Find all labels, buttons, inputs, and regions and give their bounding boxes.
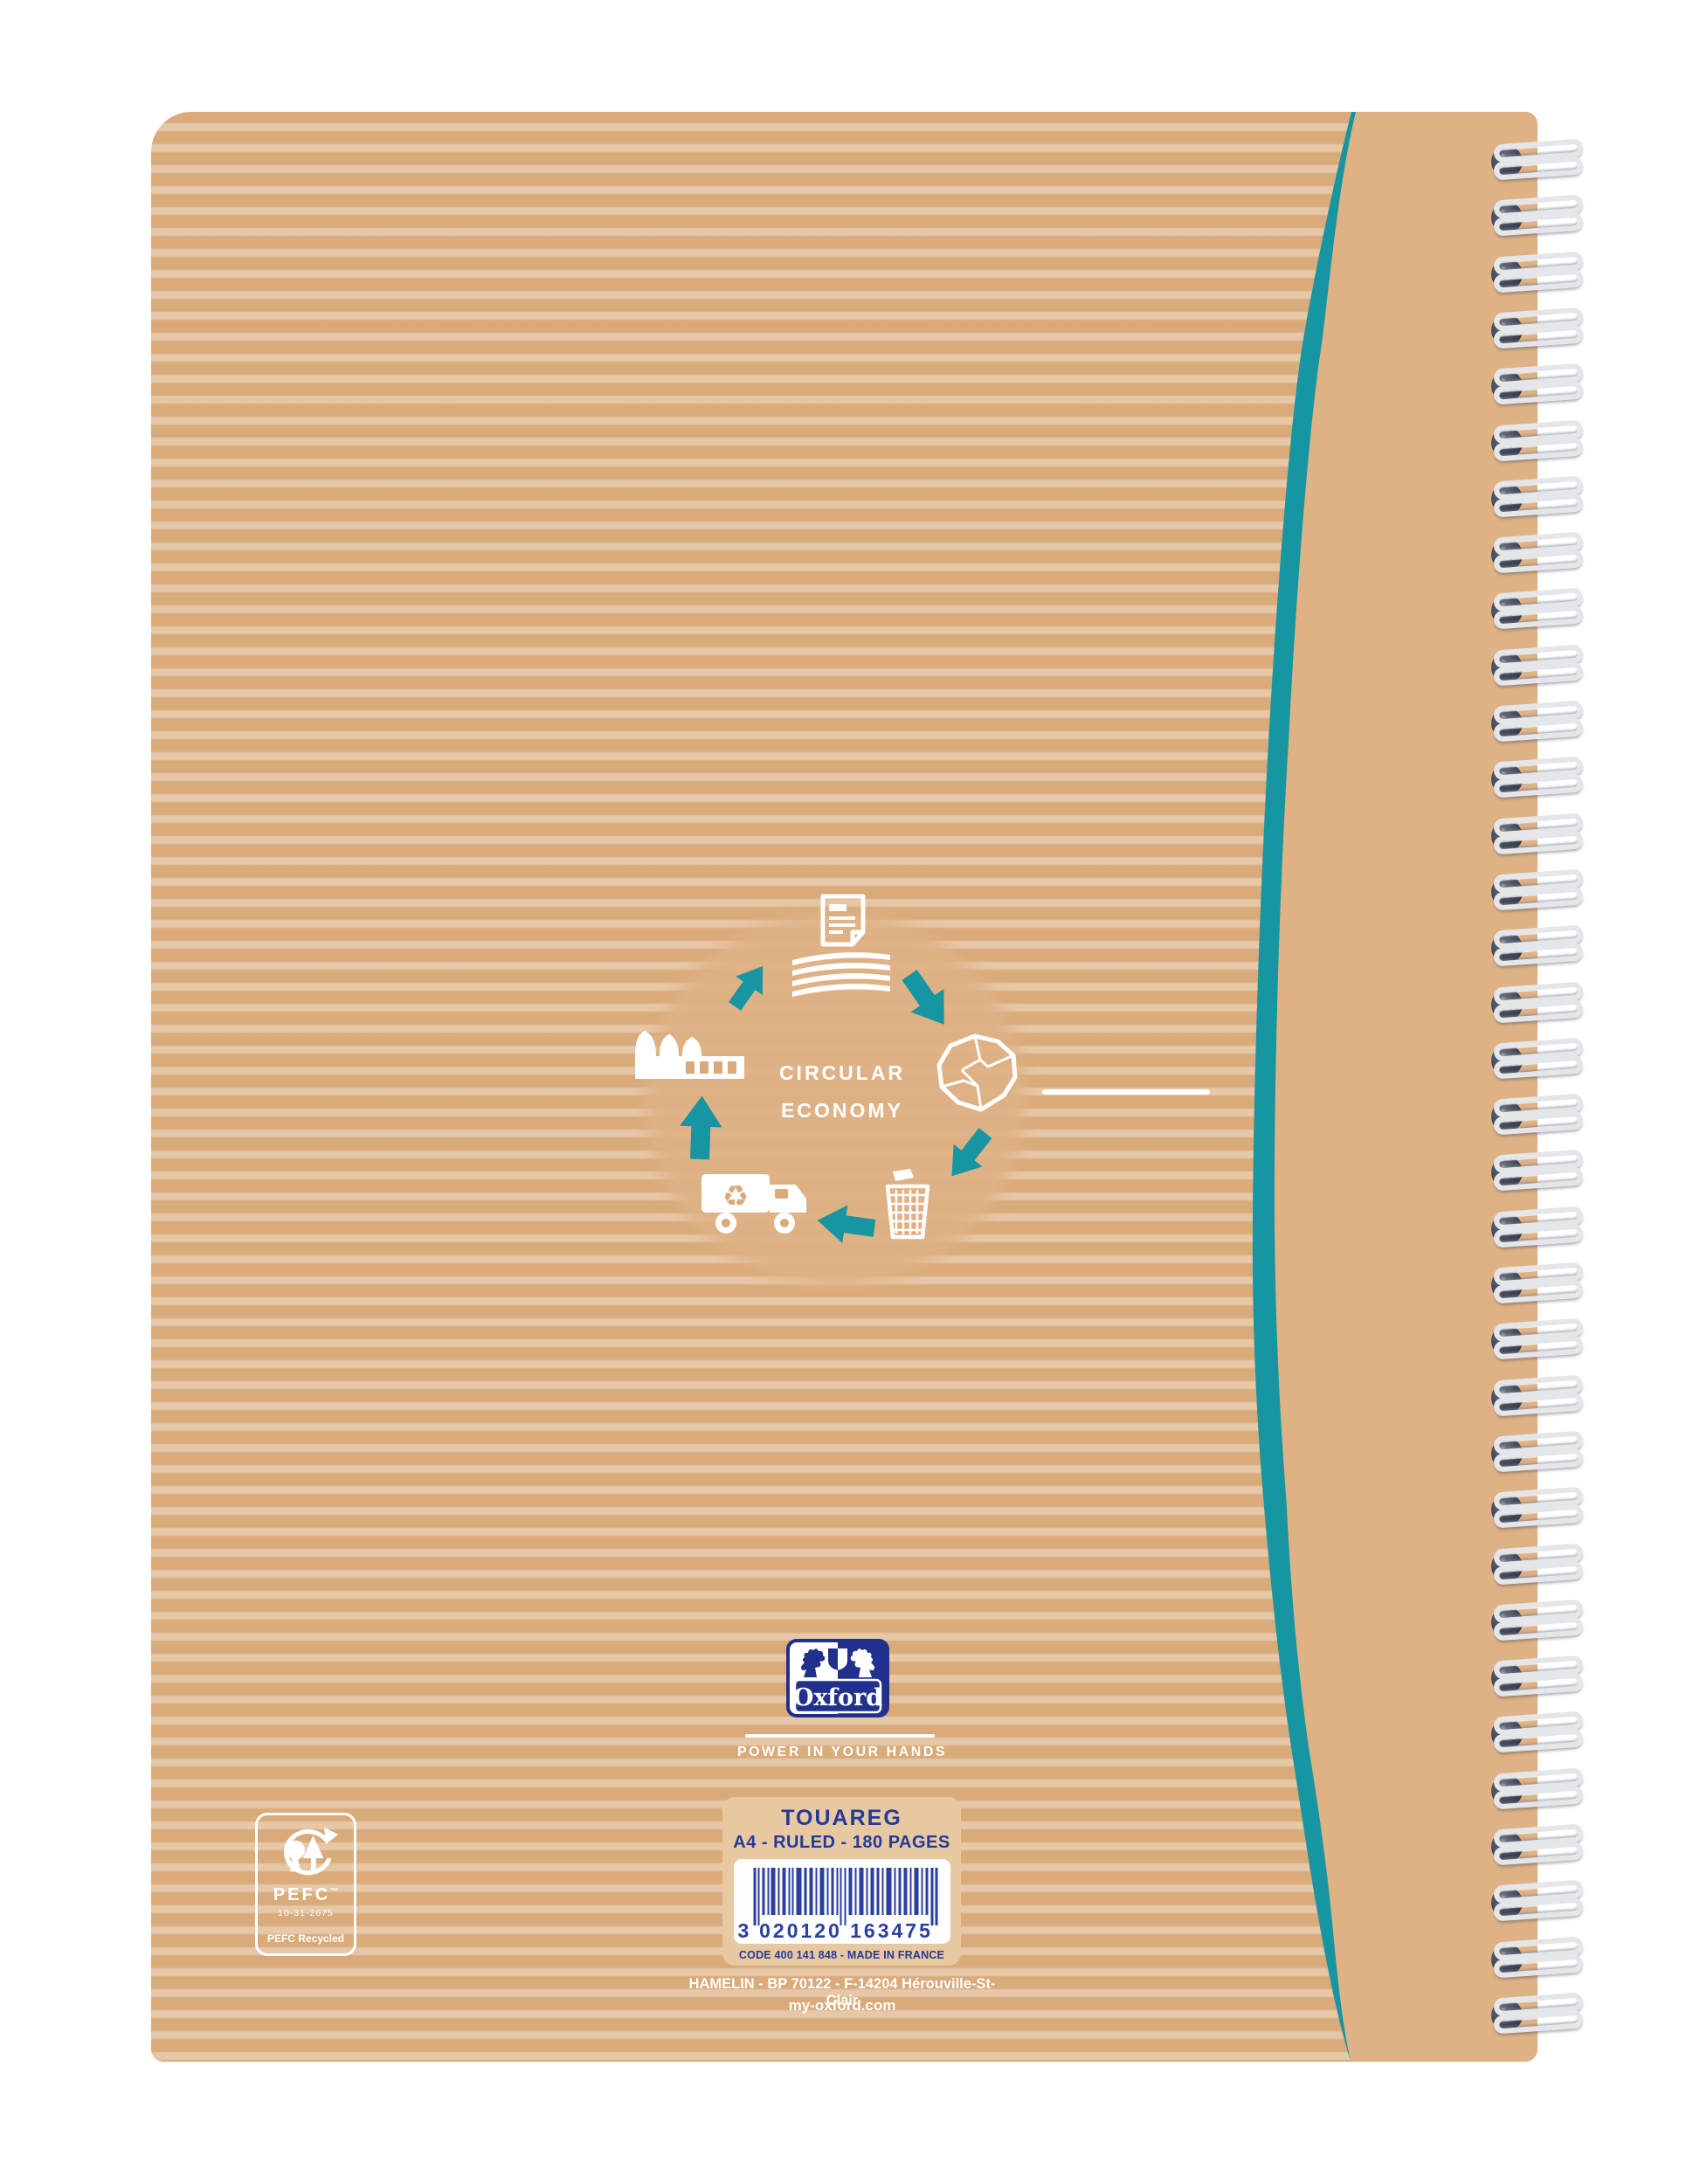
barcode: 3 020120 163475 (734, 1859, 950, 1944)
brand-divider-line (745, 1734, 935, 1738)
pefc-certification-box: PEFC™ 10-31-2675 PEFC Recycled (255, 1813, 356, 1956)
product-specs: A4 - RULED - 180 PAGES (722, 1833, 961, 1853)
artwork-title-line1: CIRCULAR (711, 1062, 973, 1084)
barcode-digits-right: 163475 (850, 1919, 933, 1942)
notebook-back-cover: ♻ (151, 112, 1538, 2062)
product-code-line: CODE 400 141 848 - MADE IN FRANCE (722, 1949, 961, 1961)
artwork-title-line2: ECONOMY (711, 1100, 973, 1122)
pefc-license-number: 10-31-2675 (278, 1908, 334, 1918)
pefc-trademark: ™ (330, 1886, 338, 1895)
pefc-recycled-label: PEFC Recycled (267, 1932, 344, 1945)
oxford-wordmark: Oxford (793, 1684, 882, 1711)
website-url: my-oxford.com (711, 1997, 973, 2015)
oxford-logo: Oxford (786, 1639, 889, 1717)
brand-tagline: POWER IN YOUR HANDS (711, 1745, 973, 1760)
product-label: TOUAREG A4 - RULED - 180 PAGES 3 020120 … (722, 1797, 961, 1966)
artwork-divider-line (1042, 1089, 1210, 1095)
barcode-digit-lead: 3 (737, 1919, 751, 1942)
barcode-digits-left: 020120 (759, 1919, 842, 1942)
pefc-trees-icon (273, 1824, 339, 1883)
recycle-symbol-icon: ♻ (722, 1179, 749, 1214)
pefc-name: PEFC™ (273, 1885, 338, 1905)
pefc-name-text: PEFC (273, 1885, 330, 1904)
product-name: TOUAREG (722, 1806, 961, 1831)
